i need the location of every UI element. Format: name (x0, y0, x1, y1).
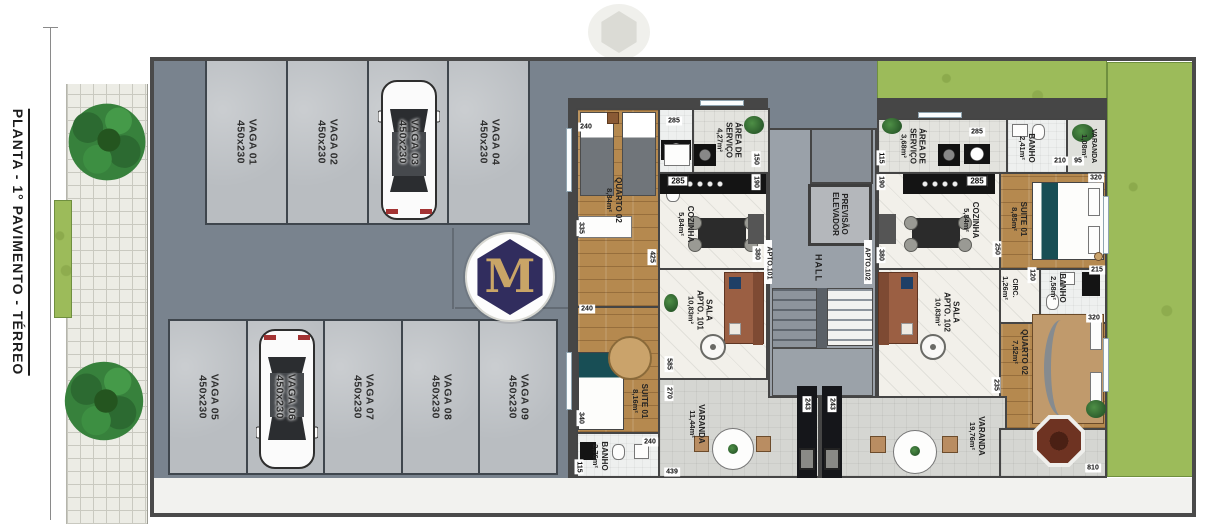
label-circ-102: CIRC.1,26m² (1001, 276, 1019, 300)
logo-letter: M (485, 253, 536, 299)
chair (958, 238, 972, 252)
parking-stall: VAGA 01450x230 (207, 61, 288, 223)
label-cozinha-101: COZINHA5,84m² (677, 206, 695, 242)
dimension-label: 210 (1052, 157, 1068, 166)
nightstand (607, 112, 619, 124)
stall-label: VAGA 04450x230 (477, 119, 500, 166)
pillow (1088, 226, 1100, 254)
dimension-label: 240 (578, 123, 594, 132)
parking-stall: VAGA 09450x230 (480, 321, 556, 473)
dining-table (912, 218, 960, 248)
stall-label: VAGA 07450x230 (351, 374, 374, 421)
dimension-label: 243 (828, 396, 837, 412)
dimension-label: 240 (579, 305, 595, 314)
dimension-label: 285 (666, 117, 682, 126)
label-quarto02-102: QUARTO 027,52m² (1011, 329, 1029, 375)
window (700, 100, 744, 106)
single-bed (622, 112, 656, 196)
dimension-label: 380 (753, 246, 762, 262)
ceiling-fan-icon (700, 334, 726, 360)
pillow (1090, 372, 1102, 402)
tree-icon (55, 352, 153, 450)
parking-row-top: VAGA 01450x230 VAGA 02450x230 VAGA 03450… (205, 59, 530, 225)
pillow (729, 323, 741, 335)
stair-flight-right (827, 288, 873, 346)
driveway-joint (452, 228, 454, 309)
window (918, 112, 962, 118)
parking-stall: VAGA 05450x230 (170, 321, 248, 473)
label-servico-102: ÁREA DE SERVIÇO3,68m² (900, 128, 927, 164)
parking-stall: VAGA 06450x230 (248, 321, 326, 473)
label-door-apto101: APTO.101 (765, 247, 774, 280)
dimension-label: 190 (877, 174, 886, 190)
label-hall: HALL (814, 254, 823, 282)
dimension-label: 439 (664, 468, 680, 477)
watermark-logo (588, 4, 650, 60)
label-varanda-102: VARANDA19,76m² (968, 416, 986, 455)
laundry-tank (664, 144, 690, 166)
dimension-label: 115 (877, 150, 886, 165)
label-quarto02-101: QUARTO 028,84m² (605, 177, 623, 223)
plan-title: PLANTA - 1° PAVIMENTO - TÉRREO (10, 109, 30, 376)
parking-stall: VAGA 02450x230 (288, 61, 369, 223)
label-elevator: PREVISÃO ELEVADOR (831, 192, 849, 236)
chair (870, 436, 886, 453)
grass-right (1107, 62, 1193, 477)
stall-label: VAGA 08450x230 (429, 374, 452, 421)
pillow (1090, 320, 1102, 350)
dimension-label: 215 (1089, 266, 1105, 275)
sofa (724, 272, 764, 344)
label-door-apto102: APTO.102 (863, 248, 872, 281)
pillow (901, 323, 913, 335)
dimension-label: 320 (1088, 174, 1104, 183)
logo-hexagon: M (473, 239, 547, 315)
stall-label: VAGA 06450x230 (274, 374, 297, 421)
plant-icon (1086, 400, 1106, 418)
label-servico-101: ÁREA DE SERVIÇO4,27m² (716, 122, 743, 158)
dimension-label: 285 (667, 176, 688, 187)
window (1103, 196, 1109, 254)
label-banho-suite-102: BANHO2,41m² (1018, 133, 1036, 162)
label-banho-102: BANHO2,58m² (1049, 273, 1067, 302)
shower (1082, 272, 1100, 296)
label-cozinha-102: COZINHA5,84m² (962, 202, 980, 238)
dimension-label: 243 (803, 396, 812, 412)
dimension-label: 285 (966, 176, 987, 187)
pillow (901, 277, 913, 289)
stair-flight-left (772, 288, 817, 348)
pillow (729, 277, 741, 289)
property-line-tick (43, 27, 58, 28)
sidewalk-strip (152, 478, 1193, 515)
label-sala-102: SALA APTO. 10210,83m² (934, 292, 961, 332)
dimension-label: 115 (575, 459, 584, 474)
floor-plan: PLANTA - 1° PAVIMENTO - TÉRREO VAGA 0145… (0, 0, 1230, 524)
ceiling-fan-icon (920, 334, 946, 360)
plant-icon (910, 446, 920, 456)
parking-stall: VAGA 08450x230 (403, 321, 481, 473)
chair (904, 238, 918, 252)
washing-machine (938, 144, 960, 166)
dimension-label: 95 (1072, 157, 1084, 166)
label-suite-102: SUITE 018,85m² (1010, 202, 1028, 237)
dining-table (698, 218, 746, 248)
dimension-label: 380 (877, 247, 886, 263)
technical-room (810, 128, 873, 184)
dimension-label: 320 (1086, 314, 1102, 323)
chair (942, 436, 958, 453)
kitchen-cabinet (879, 214, 896, 244)
plant-icon (664, 294, 678, 312)
chair (904, 216, 918, 230)
dimension-label: 810 (1085, 464, 1101, 473)
plant-icon (744, 116, 764, 134)
toilet (612, 444, 625, 460)
stall-label: VAGA 09450x230 (507, 374, 530, 421)
laundry-sink (964, 144, 990, 164)
stall-label: VAGA 01450x230 (235, 119, 258, 166)
window (1103, 338, 1109, 392)
label-banho-101: BANHO2,76m² (591, 441, 609, 470)
sofa (878, 272, 918, 344)
stall-label: VAGA 05450x230 (196, 374, 219, 421)
grill (799, 448, 815, 470)
sofa-back (879, 273, 889, 345)
parking-stall: VAGA 07450x230 (325, 321, 403, 473)
stall-label: VAGA 02450x230 (316, 119, 339, 166)
label-varanda-101: VARANDA11,44m² (688, 404, 706, 443)
grass-strip-left (54, 200, 72, 318)
washing-machine (694, 144, 716, 166)
parking-row-bottom: VAGA 05450x230 VAGA 06450x230 VAGA 07450… (168, 319, 558, 475)
stair-rail (817, 288, 827, 350)
kitchen-cabinet (748, 214, 764, 244)
tree-icon (59, 94, 155, 190)
window (566, 352, 572, 410)
lamp (1094, 252, 1103, 261)
window (566, 128, 572, 192)
sofa-back (753, 273, 763, 345)
dimension-label: 250 (993, 241, 1002, 257)
parking-stall: VAGA 03450x230 (369, 61, 450, 223)
stall-label: VAGA 03450x230 (396, 119, 419, 166)
chair (756, 436, 771, 452)
dimension-label: 150 (752, 151, 761, 167)
label-suite-101: SUITE 018,16m² (631, 384, 649, 419)
plant-icon (728, 444, 738, 454)
dimension-label: 340 (577, 410, 586, 426)
dimension-label: 190 (752, 174, 761, 190)
pillow (1088, 188, 1100, 216)
dimension-label: 235 (992, 377, 1001, 393)
property-line (50, 28, 51, 520)
dimension-label: 335 (577, 220, 586, 236)
hammock-chair (1044, 320, 1078, 416)
dimension-label: 270 (665, 385, 674, 401)
dimension-label: 240 (642, 438, 658, 447)
dimension-label: 120 (1028, 267, 1037, 283)
core-top-driveway (768, 98, 877, 130)
dimension-label: 425 (648, 249, 657, 265)
label-sala-101: SALA APTO. 10110,83m² (687, 290, 714, 330)
brand-logo: M (465, 232, 555, 322)
grill (824, 448, 840, 470)
dimension-label: 285 (969, 128, 985, 137)
round-rug (608, 336, 652, 380)
dimension-label: 585 (665, 356, 674, 372)
parking-stall: VAGA 04450x230 (449, 61, 528, 223)
watermark-hexagon (599, 11, 639, 53)
